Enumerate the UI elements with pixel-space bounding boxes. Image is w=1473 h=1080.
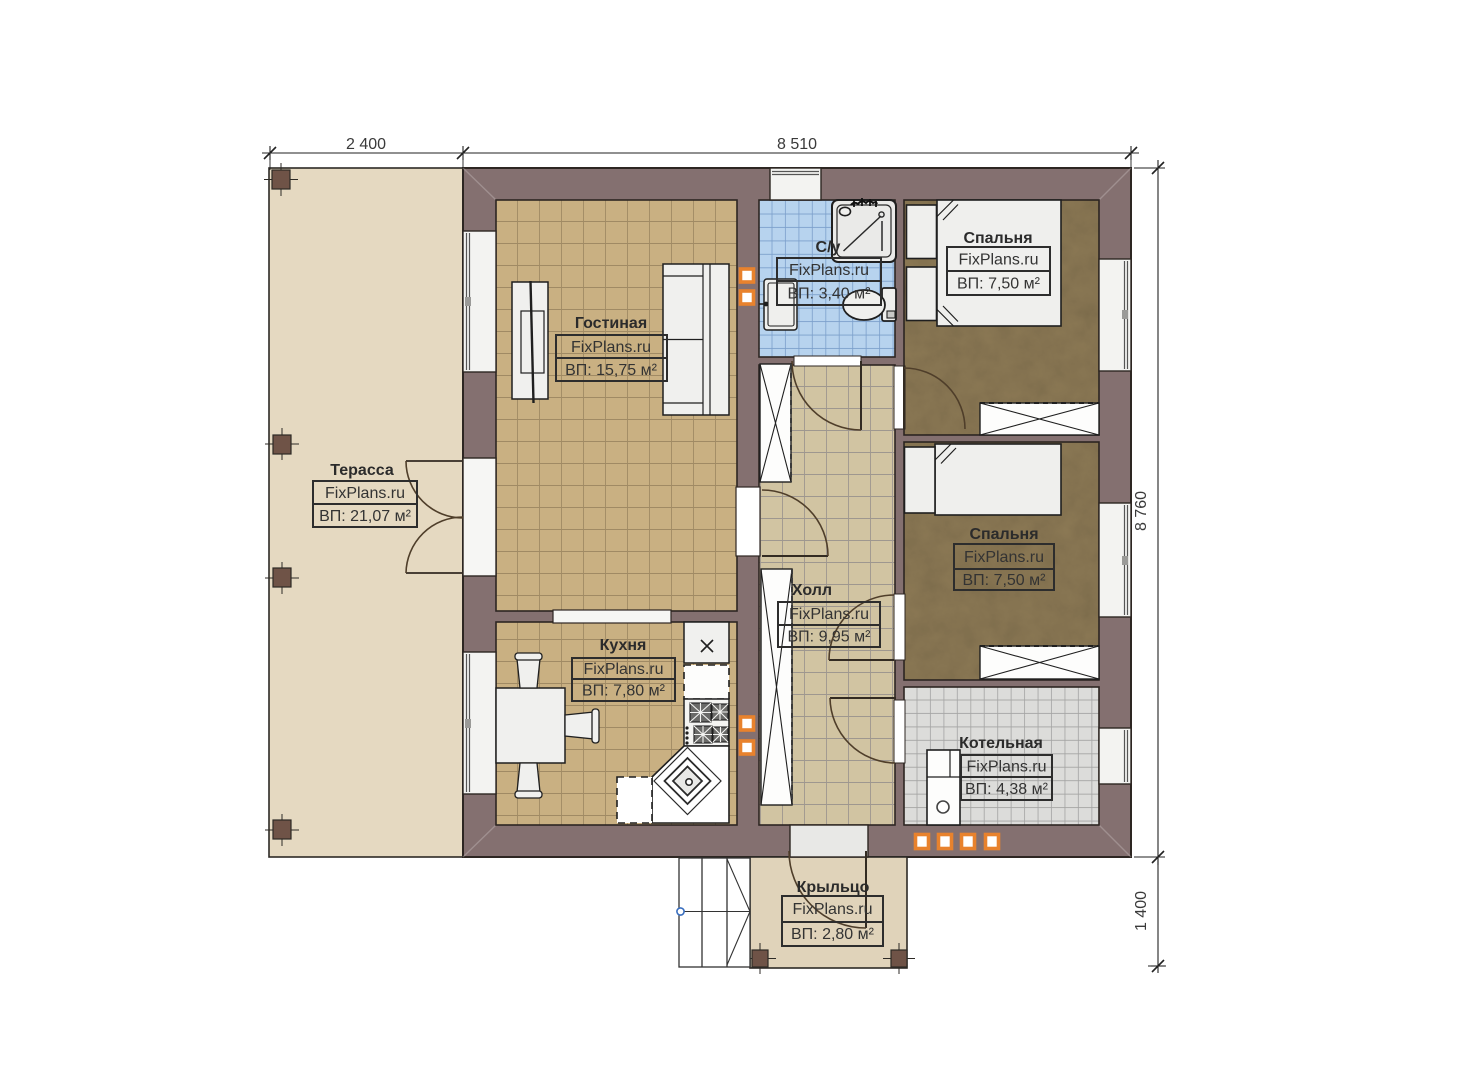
svg-text:2 400: 2 400: [346, 136, 386, 153]
svg-text:ВП: 15,75 м²: ВП: 15,75 м²: [565, 362, 658, 379]
svg-text:ВП: 2,80 м²: ВП: 2,80 м²: [791, 926, 875, 943]
svg-text:FixPlans.ru: FixPlans.ru: [792, 901, 872, 918]
svg-text:Кухня: Кухня: [600, 637, 647, 654]
svg-text:ВП: 7,50 м²: ВП: 7,50 м²: [963, 572, 1047, 589]
svg-text:FixPlans.ru: FixPlans.ru: [958, 252, 1038, 269]
svg-text:FixPlans.ru: FixPlans.ru: [964, 549, 1044, 566]
svg-text:ВП: 3,40 м²: ВП: 3,40 м²: [788, 286, 872, 303]
svg-text:FixPlans.ru: FixPlans.ru: [966, 759, 1046, 776]
svg-text:FixPlans.ru: FixPlans.ru: [583, 661, 663, 678]
svg-text:ВП: 9,95 м²: ВП: 9,95 м²: [788, 629, 872, 646]
svg-text:FixPlans.ru: FixPlans.ru: [789, 606, 869, 623]
svg-text:FixPlans.ru: FixPlans.ru: [789, 262, 869, 279]
svg-text:Крыльцо: Крыльцо: [797, 879, 870, 896]
svg-text:Холл: Холл: [792, 582, 832, 599]
svg-text:ВП: 21,07 м²: ВП: 21,07 м²: [319, 508, 412, 525]
svg-text:8 760: 8 760: [1133, 491, 1150, 531]
svg-text:Спальня: Спальня: [963, 230, 1032, 247]
svg-text:FixPlans.ru: FixPlans.ru: [571, 339, 651, 356]
svg-text:Котельная: Котельная: [959, 735, 1043, 752]
svg-text:С/у: С/у: [816, 239, 841, 256]
svg-text:FixPlans.ru: FixPlans.ru: [325, 485, 405, 502]
svg-text:ВП: 7,50 м²: ВП: 7,50 м²: [957, 276, 1041, 293]
svg-text:1 400: 1 400: [1133, 891, 1150, 931]
svg-text:ВП: 4,38 м²: ВП: 4,38 м²: [965, 781, 1049, 798]
svg-text:Терасса: Терасса: [330, 462, 394, 479]
svg-text:8 510: 8 510: [777, 136, 817, 153]
svg-text:Спальня: Спальня: [969, 526, 1038, 543]
svg-text:ВП: 7,80 м²: ВП: 7,80 м²: [582, 683, 666, 700]
svg-text:Гостиная: Гостиная: [575, 315, 647, 332]
